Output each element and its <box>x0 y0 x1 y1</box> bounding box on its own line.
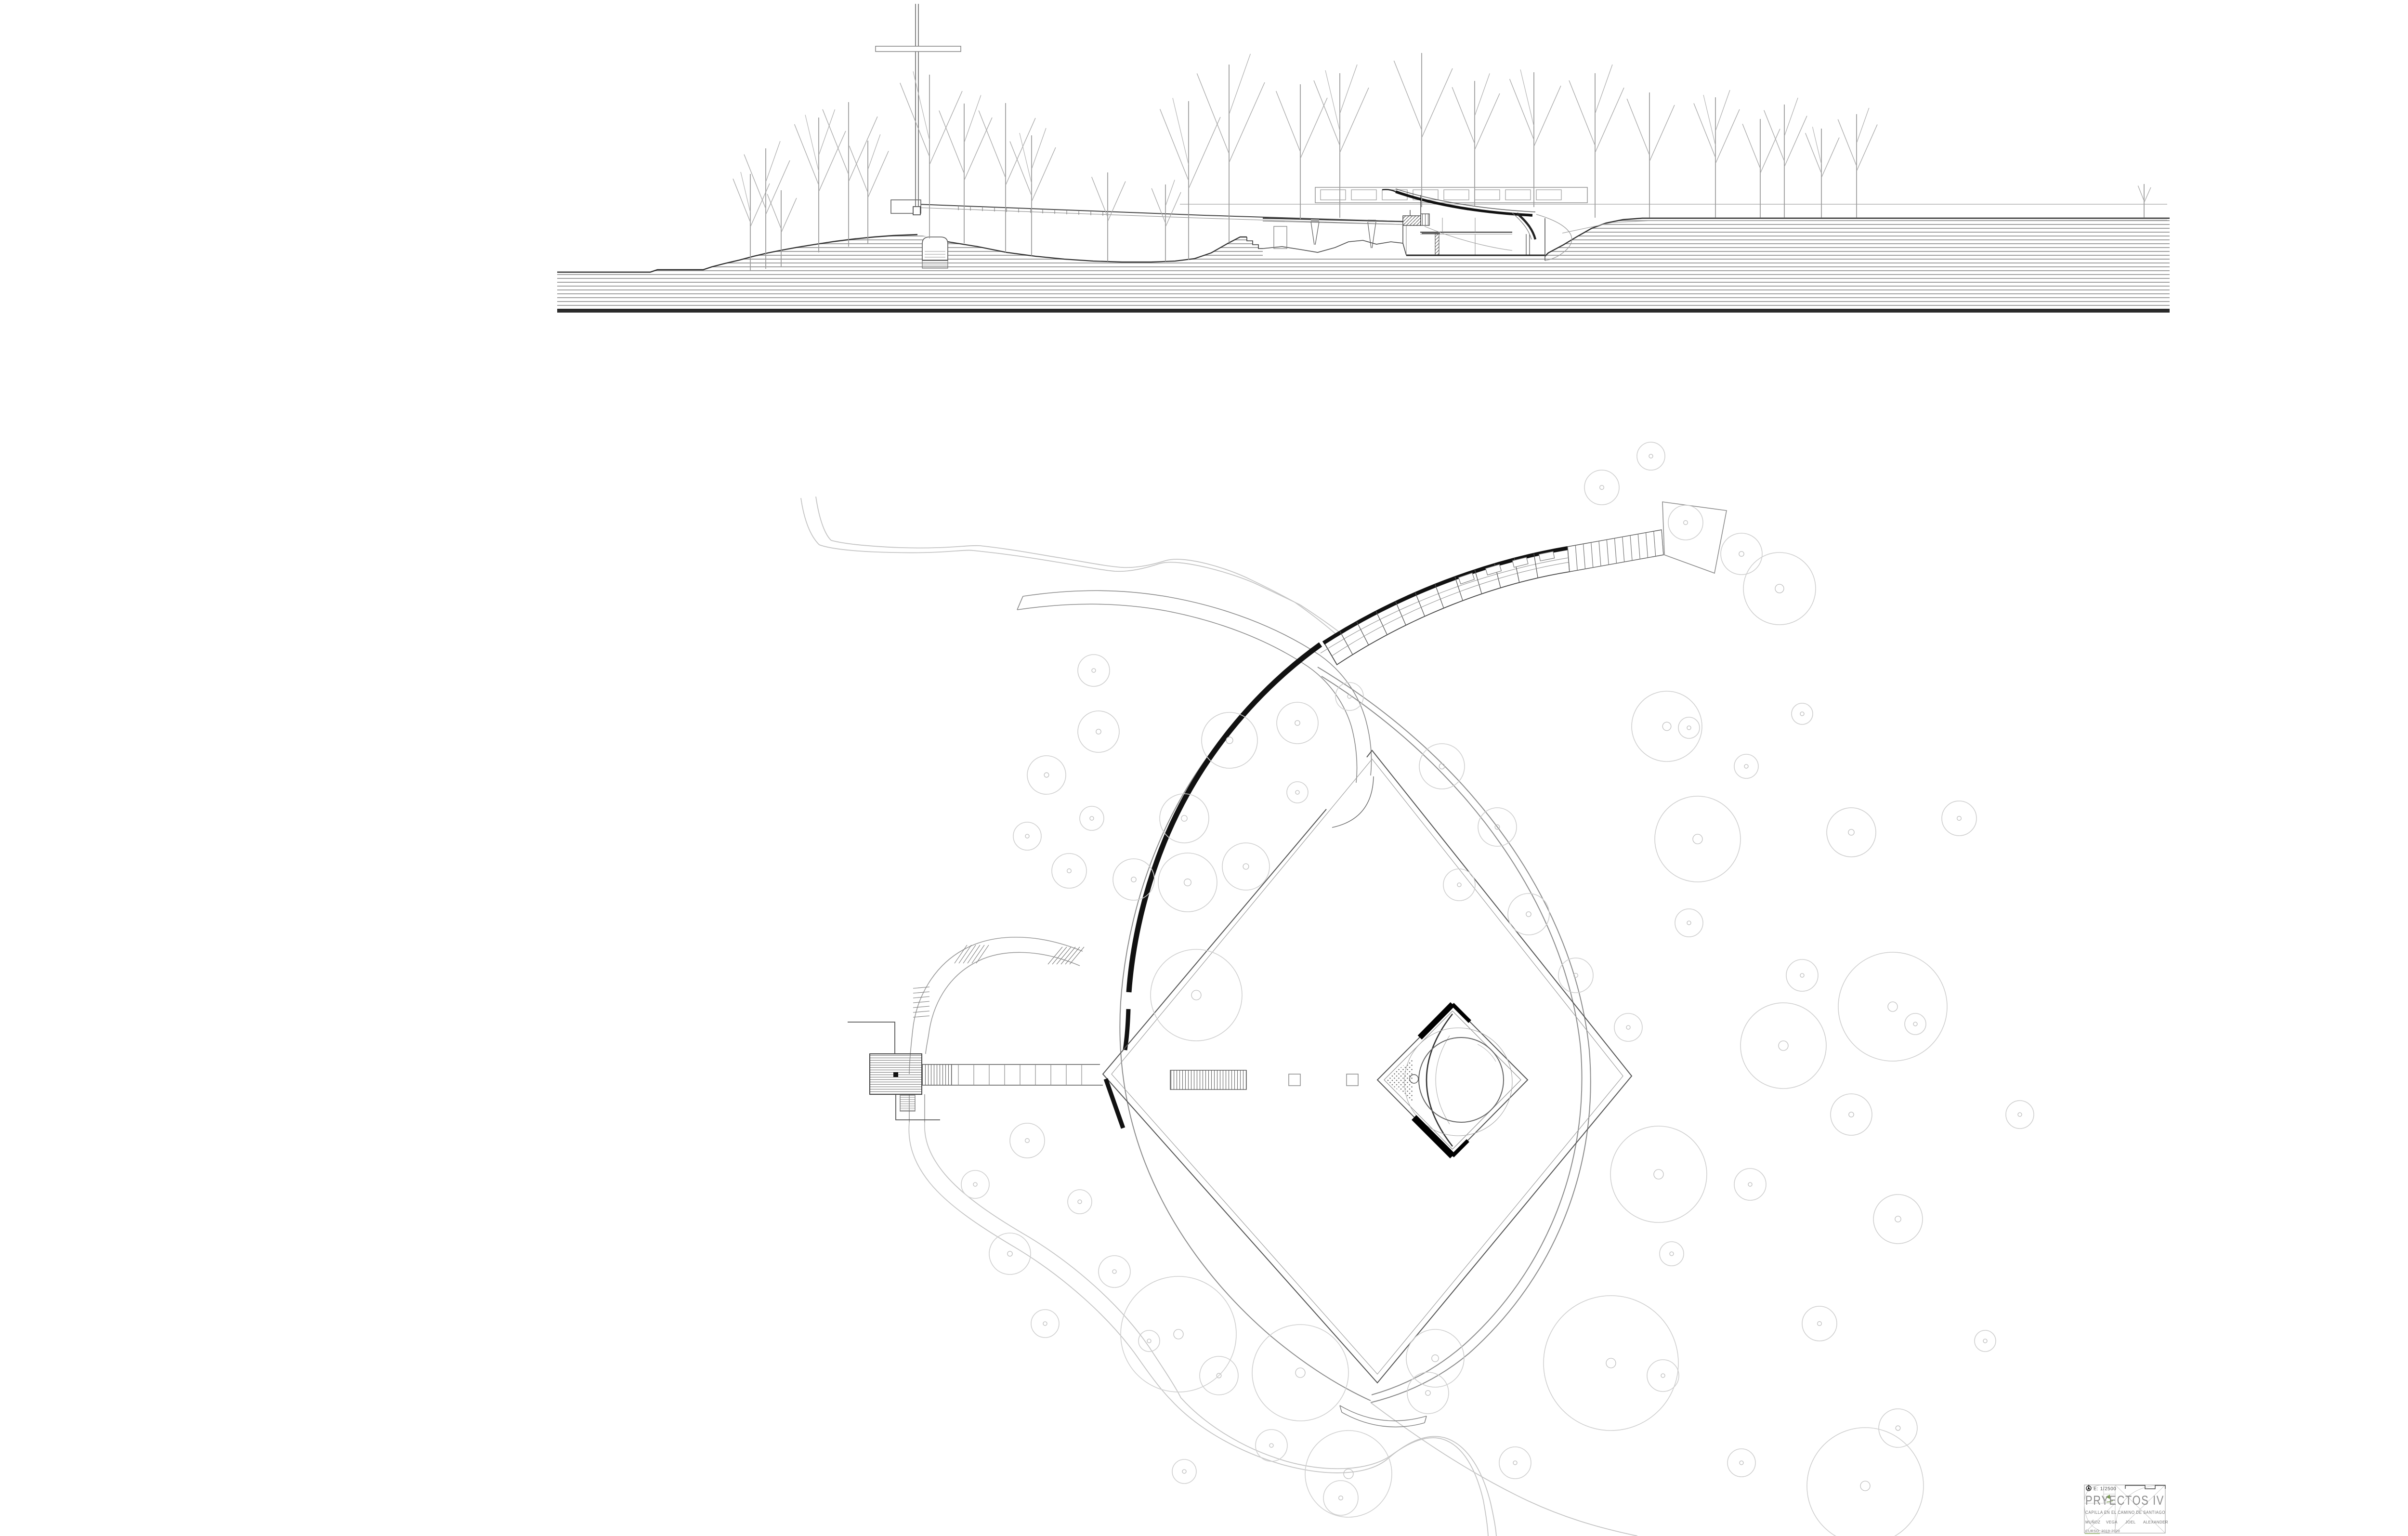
plan-bench-arc <box>1340 1405 1426 1427</box>
project-title: PRYECTOS IV <box>2085 1493 2164 1508</box>
plan-tree <box>1407 1372 1449 1414</box>
plan-tree <box>1202 712 1257 768</box>
hillside-arch-door <box>922 237 948 268</box>
plan-tree <box>1031 1310 1059 1338</box>
plan-tree <box>1614 1013 1642 1041</box>
plan-tree <box>1873 1195 1923 1244</box>
plan-tree <box>1827 808 1876 857</box>
bare-tree <box>1452 73 1500 206</box>
plan-tree <box>1287 782 1308 803</box>
bare-tree <box>1694 90 1740 218</box>
plan-tree <box>1792 703 1813 724</box>
bare-tree <box>849 134 889 244</box>
plan-leaf-paths <box>1120 651 1637 1536</box>
diamond-edge-black-mark <box>1106 1079 1123 1128</box>
hall-cut-wall <box>1435 234 1439 255</box>
plan-tree <box>1099 1256 1130 1287</box>
plan-tree <box>1558 958 1593 993</box>
bare-tree <box>979 103 1035 252</box>
plan-tree <box>1544 1296 1678 1431</box>
plan-tree <box>1305 1431 1392 1517</box>
plan-tree <box>1158 853 1217 912</box>
plan-tree <box>1078 655 1110 686</box>
plan-tree <box>1831 1094 1872 1135</box>
plan-tree <box>1632 691 1702 761</box>
pier-post <box>893 1072 898 1077</box>
ground-baseline <box>557 309 2170 313</box>
section-drawing <box>557 4 2170 313</box>
site-plan <box>801 442 2034 1536</box>
drawing-sheet: E: 1/2500 PRYECTOS IV CAPILLA EN EL CAMI… <box>0 0 2408 1536</box>
plan-tree <box>1027 756 1066 794</box>
plan-tree <box>1879 1409 1917 1447</box>
bare-tree <box>1742 119 1780 218</box>
cross-arm <box>876 46 961 52</box>
plan-tree <box>1277 702 1318 744</box>
plan-tree <box>1678 717 1700 738</box>
plan-tree <box>1052 853 1086 888</box>
plan-tree <box>1721 533 1762 575</box>
plan-tree <box>1013 822 1041 850</box>
plan-tree <box>1499 1447 1531 1479</box>
section-cut-mullions <box>1421 214 1429 225</box>
plan-tree <box>1675 909 1703 937</box>
plaza-walkway-hatch <box>1170 1070 1246 1090</box>
plan-tree <box>1419 744 1465 789</box>
plan-inner-sanctum <box>1377 1004 1528 1156</box>
bare-tree <box>1160 98 1220 260</box>
plan-dome <box>1419 1037 1504 1122</box>
plaza-column-2 <box>1347 1074 1358 1086</box>
author-name: VEGA <box>2106 1520 2118 1524</box>
plan-tree <box>1335 683 1363 710</box>
plan-tree <box>2006 1101 2034 1129</box>
plan-tree <box>1660 1242 1684 1266</box>
author-name: MUÑOZ <box>2085 1520 2100 1524</box>
plan-contours <box>801 497 1356 645</box>
plan-main-arc <box>1125 644 1321 1050</box>
plaza-column-1 <box>1289 1074 1300 1086</box>
plan-tree <box>961 1170 989 1198</box>
plan-tree <box>1807 1428 1924 1536</box>
plan-tree <box>1734 754 1758 778</box>
chapel-clerestory-band <box>1315 187 1587 203</box>
plan-tree <box>1584 470 1619 505</box>
plan-tree <box>1734 1168 1766 1200</box>
bare-tree <box>2138 184 2151 218</box>
pier-stair <box>900 1095 915 1111</box>
bare-tree <box>1394 53 1453 207</box>
plan-boardwalk <box>922 1064 1103 1085</box>
site-drawing-canvas: E: 1/2500 PRYECTOS IV CAPILLA EN EL CAMI… <box>0 0 2408 1536</box>
plan-tree <box>1942 801 1976 836</box>
plan-tree <box>1323 1481 1358 1515</box>
bare-tree <box>795 109 846 252</box>
section-cut-pier <box>1403 216 1421 225</box>
bare-tree <box>1510 69 1561 207</box>
title-block: E: 1/2500 PRYECTOS IV CAPILLA EN EL CAMI… <box>2084 1485 2168 1534</box>
author-name: ALEXANDER <box>2143 1520 2168 1524</box>
plan-bottom-path <box>909 1122 1496 1536</box>
plan-tree <box>1080 806 1104 830</box>
bare-tree <box>1838 108 1877 218</box>
bare-tree <box>1197 54 1265 243</box>
plan-ramp <box>1568 530 1663 572</box>
plan-tree <box>1655 796 1741 882</box>
plan-tree <box>989 1233 1031 1274</box>
plan-tree <box>1139 1330 1160 1352</box>
plan-tree <box>1741 1003 1826 1089</box>
pier-rail-north <box>848 1022 895 1054</box>
bare-tree <box>823 102 877 247</box>
plan-tree <box>1121 1276 1236 1392</box>
bare-tree <box>1152 180 1181 262</box>
plan-meander-path <box>909 937 1083 1122</box>
bare-tree <box>1764 98 1807 218</box>
plan-tree <box>1443 869 1475 901</box>
plan-tree <box>1068 1190 1092 1214</box>
plan-tree <box>1743 552 1816 625</box>
bare-tree <box>939 95 992 243</box>
bare-tree <box>1627 92 1675 218</box>
plan-tree <box>1637 442 1665 470</box>
plan-tree <box>1727 1449 1755 1477</box>
plan-tree <box>1610 1126 1707 1222</box>
course-label: CURSO: 2019-2020 <box>2085 1529 2120 1533</box>
plan-tree <box>1838 952 1947 1061</box>
plan-tree <box>1786 959 1818 991</box>
scale-label: E: 1/2500 <box>2094 1486 2116 1492</box>
plan-gallery-building <box>1321 547 1570 665</box>
plan-tree <box>1252 1325 1348 1421</box>
bare-tree <box>1010 128 1056 256</box>
cross-monument <box>876 4 961 207</box>
cross-mast-base <box>913 207 920 215</box>
plan-tree <box>1172 1459 1196 1483</box>
plan-tree <box>1508 893 1549 935</box>
bare-tree <box>1092 172 1125 262</box>
entry-door-swing <box>1332 776 1374 827</box>
plan-tree <box>1078 711 1119 752</box>
author-name: JOEL <box>2125 1520 2136 1524</box>
plan-diamond-plaza <box>1103 750 1632 1383</box>
plan-tree <box>1010 1123 1045 1158</box>
plan-tree <box>1222 843 1269 890</box>
plan-tree <box>1406 1329 1464 1387</box>
meander-step-runs <box>913 945 1084 1017</box>
plan-tree <box>1975 1330 1996 1352</box>
plan-tree <box>1905 1013 1926 1035</box>
project-subtitle: CAPILLA EN EL CAMINO DE SANTIAGO <box>2085 1510 2165 1515</box>
plan-tree <box>1802 1306 1837 1341</box>
